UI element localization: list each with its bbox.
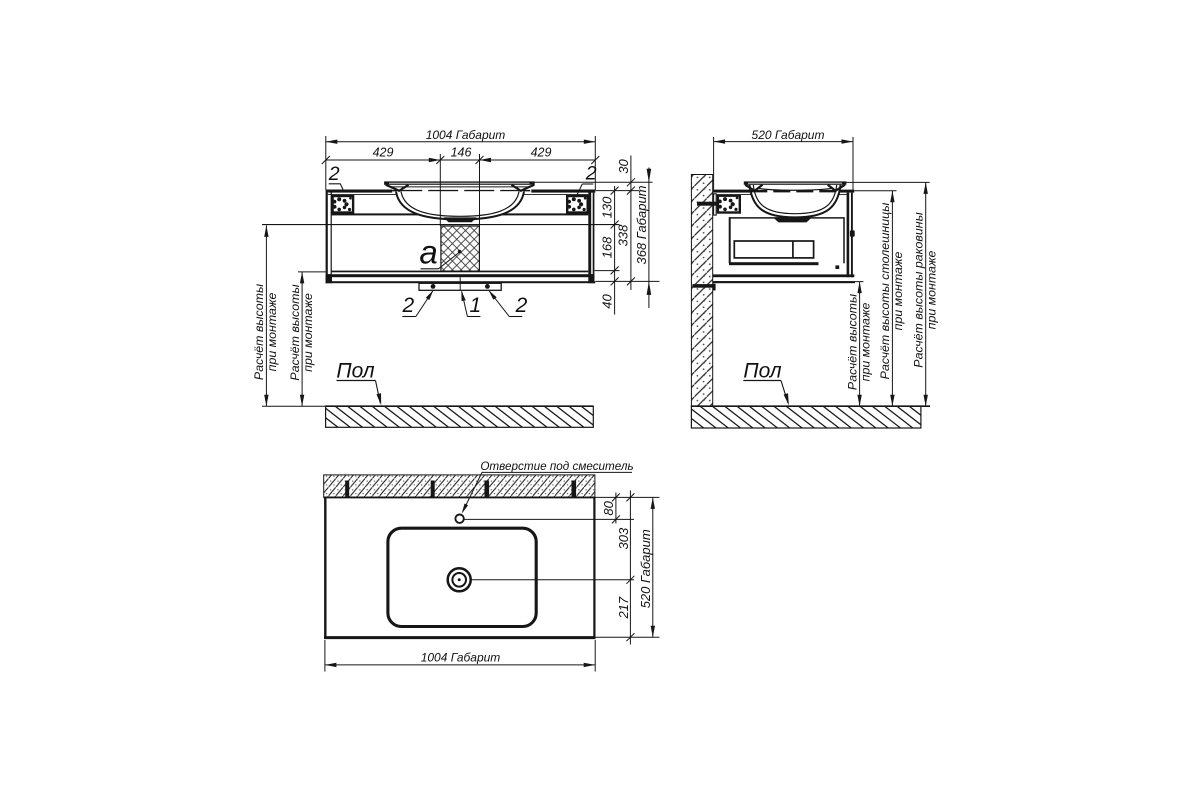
svg-text:30: 30 xyxy=(616,159,631,174)
svg-text:2: 2 xyxy=(585,163,597,185)
svg-text:303: 303 xyxy=(616,527,631,549)
svg-text:2: 2 xyxy=(401,294,414,317)
svg-text:Отверстие под смеситель: Отверстие под смеситель xyxy=(480,460,633,473)
svg-text:при монтаже: при монтаже xyxy=(301,293,315,372)
svg-text:520 Габарит: 520 Габарит xyxy=(752,128,825,142)
svg-text:2: 2 xyxy=(328,163,340,185)
svg-text:a: a xyxy=(419,234,437,271)
svg-text:при монтаже: при монтаже xyxy=(891,252,905,331)
svg-text:Пол: Пол xyxy=(743,360,781,383)
svg-text:Расчёт высоты: Расчёт высоты xyxy=(845,294,859,390)
svg-text:368 Габарит: 368 Габарит xyxy=(634,185,649,264)
svg-text:130: 130 xyxy=(600,196,615,218)
svg-text:520 Габарит: 520 Габарит xyxy=(638,529,653,608)
svg-text:1004 Габарит: 1004 Габарит xyxy=(426,128,506,142)
svg-text:при монтаже: при монтаже xyxy=(858,303,872,382)
svg-text:80: 80 xyxy=(601,500,616,515)
svg-text:168: 168 xyxy=(600,236,615,258)
svg-text:338: 338 xyxy=(615,224,630,246)
svg-text:при монтаже: при монтаже xyxy=(925,251,939,330)
svg-text:при монтаже: при монтаже xyxy=(265,293,279,372)
svg-text:2: 2 xyxy=(515,294,528,317)
svg-text:40: 40 xyxy=(600,294,615,309)
svg-text:1004 Габарит: 1004 Габарит xyxy=(421,650,501,664)
svg-text:Пол: Пол xyxy=(336,360,374,383)
svg-text:Расчёт высоты: Расчёт высоты xyxy=(252,284,266,380)
svg-text:Расчёт высоты раковины: Расчёт высоты раковины xyxy=(912,212,926,367)
svg-text:429: 429 xyxy=(373,145,394,159)
svg-text:Расчёт высоты столешницы: Расчёт высоты столешницы xyxy=(878,203,892,380)
svg-text:Расчёт высоты: Расчёт высоты xyxy=(288,284,302,380)
svg-text:146: 146 xyxy=(451,145,472,159)
svg-text:429: 429 xyxy=(531,145,552,159)
svg-text:217: 217 xyxy=(616,596,631,619)
svg-text:1: 1 xyxy=(469,294,481,317)
